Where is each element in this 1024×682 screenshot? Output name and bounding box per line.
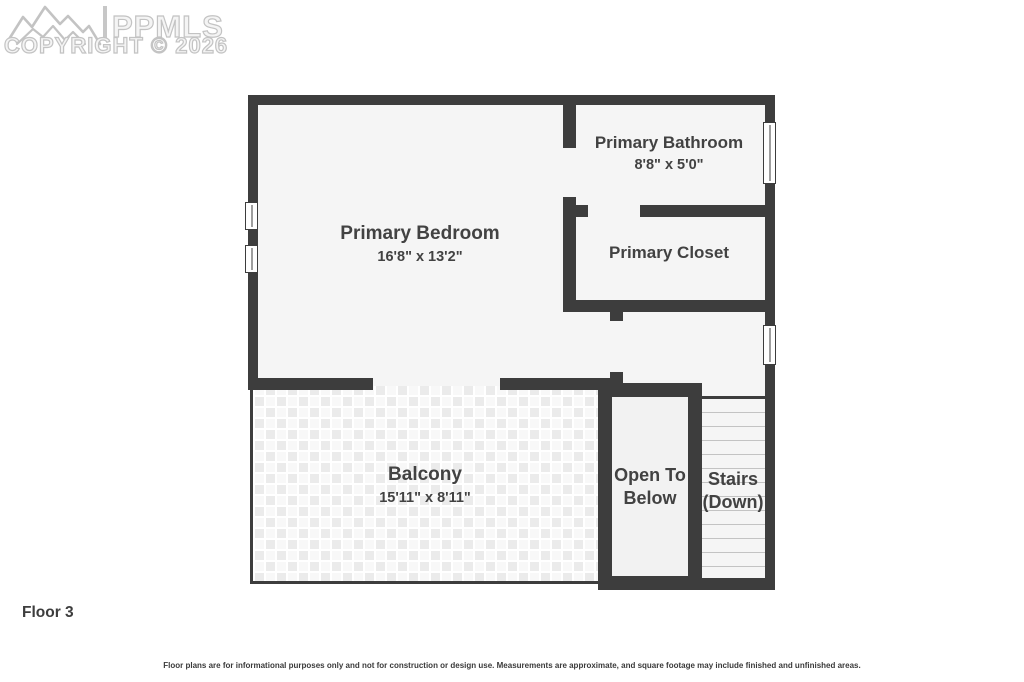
stairs-top-edge: [702, 396, 765, 399]
closet-label: Primary Closet: [563, 243, 775, 263]
bedroom-dimensions: 16'8" x 13'2": [290, 249, 550, 265]
disclaimer-text: Floor plans are for informational purpos…: [0, 661, 1024, 670]
wall-hall-stub-top: [610, 312, 623, 321]
open-to-below-box: Open To Below: [598, 383, 702, 590]
balcony-label: Balcony 15'11" x 8'11": [295, 464, 555, 506]
stairs-label: Stairs (Down): [688, 468, 778, 513]
bedroom-label: Primary Bedroom 16'8" x 13'2": [290, 223, 550, 265]
floorplan-page: PPMLS COPYRIGHT © 2026 Open To Below Sta: [0, 0, 1024, 682]
watermark-copyright: COPYRIGHT © 2026: [4, 33, 228, 59]
bathroom-dimensions: 8'8" x 5'0": [563, 157, 775, 173]
wall-left: [248, 95, 258, 390]
watermark: PPMLS COPYRIGHT © 2026: [0, 0, 230, 70]
window-bedroom-2: [245, 245, 258, 273]
balcony-name: Balcony: [295, 464, 555, 486]
window-bedroom-1: [245, 202, 258, 230]
wall-stairs-bottom: [690, 578, 775, 590]
bathroom-label: Primary Bathroom 8'8" x 5'0": [563, 133, 775, 173]
balcony-dimensions: 15'11" x 8'11": [295, 490, 555, 506]
wall-bath-closet-east-seg: [640, 205, 775, 217]
wall-bedroom-bottom-west-seg: [248, 378, 373, 390]
bedroom-name: Primary Bedroom: [290, 223, 550, 245]
bathroom-name: Primary Bathroom: [563, 133, 775, 153]
closet-name: Primary Closet: [563, 243, 775, 263]
wall-bath-closet-west-seg: [563, 205, 588, 217]
floor-label: Floor 3: [22, 604, 74, 622]
open-to-below-label: Open To Below: [614, 464, 686, 509]
open-to-below-area: Open To Below: [612, 397, 688, 576]
wall-closet-bottom: [563, 300, 775, 312]
window-hallway: [763, 325, 776, 365]
wall-top: [248, 95, 775, 105]
